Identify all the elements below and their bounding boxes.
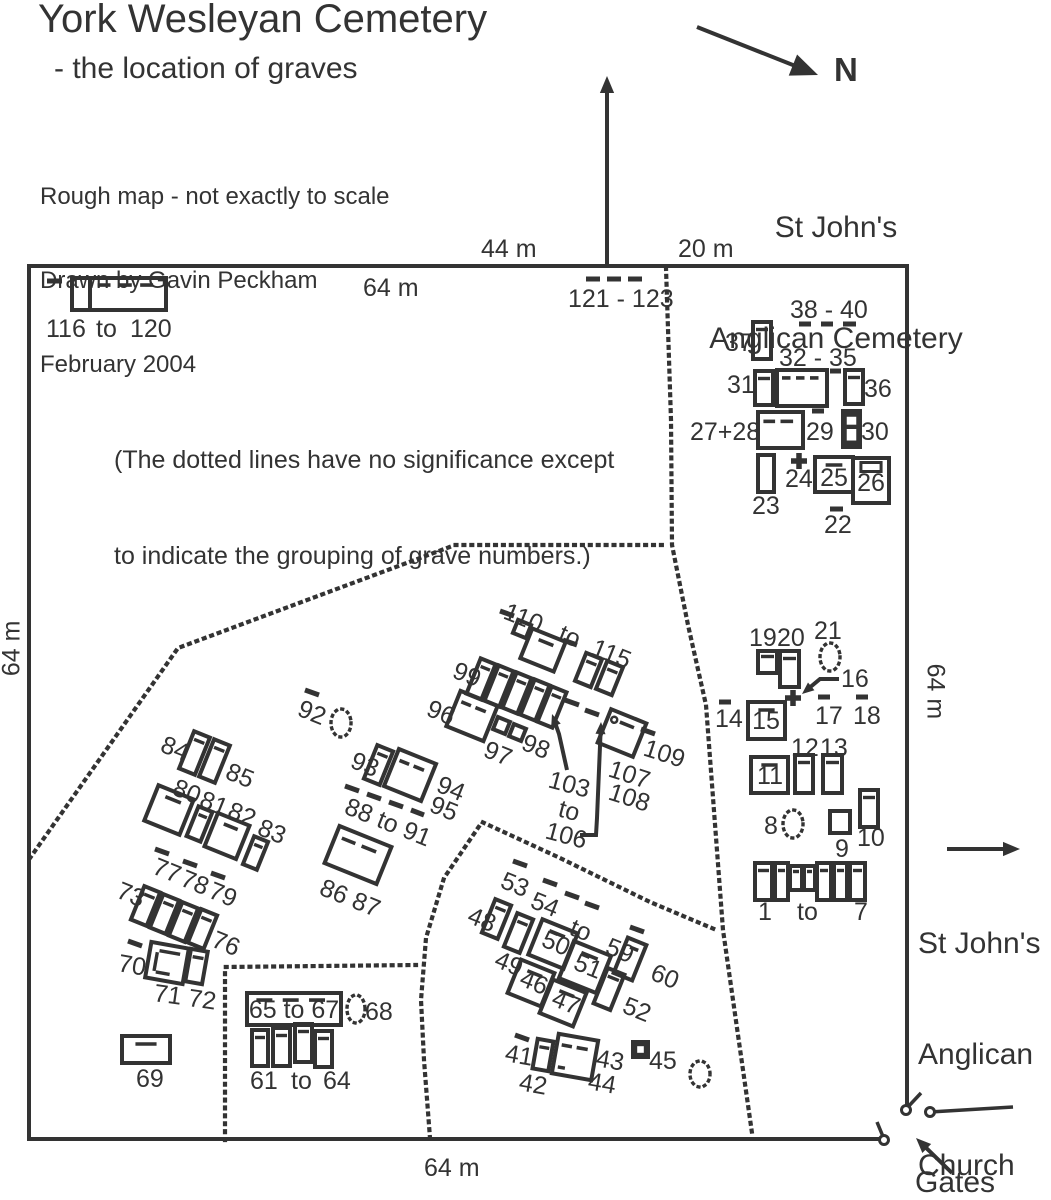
grave-plot-mark <box>342 838 355 843</box>
grave-plot-mark <box>160 951 181 955</box>
grave-plot-mark <box>254 844 262 847</box>
measurement-top-20m: 20 m <box>678 235 734 264</box>
grave-label: 1 <box>758 898 772 926</box>
grave-label: 9 <box>835 835 849 863</box>
grave-plot-outline <box>775 863 788 900</box>
cemetery-map-page: 116to120121 - 1233738 - 403132 - 353627+… <box>0 0 1051 1200</box>
unmarked-grave-dotted-outline <box>331 709 351 737</box>
grave-plot <box>780 651 799 687</box>
credit-line: Drawn by Gavin Peckham <box>40 267 390 295</box>
grave-label: 21 <box>814 617 842 645</box>
grave-plot-mark <box>156 972 170 974</box>
grave-plot <box>273 1028 290 1066</box>
grave-marker-dash <box>630 927 644 932</box>
church-line: Anglican <box>918 1036 1040 1073</box>
grave-label: 121 - 123 <box>568 285 674 313</box>
grave-label: 73 <box>113 877 149 913</box>
grave-plot-outline <box>758 651 777 673</box>
grave-plot-outline <box>504 913 533 953</box>
grave-plot-outline <box>834 863 847 900</box>
note-line: (The dotted lines have no significance e… <box>114 444 614 476</box>
grave-plot-mark <box>475 708 485 712</box>
grave-label: 11 <box>757 762 783 790</box>
grave-plot-mark <box>362 846 377 852</box>
page-title: York Wesleyan Cemetery <box>38 0 487 42</box>
grave-plot-mark <box>154 952 157 971</box>
unmarked-grave-dotted-outline <box>820 643 840 671</box>
grave-marker-dash <box>513 861 527 866</box>
grave-plot-outline <box>850 863 865 900</box>
measurement-top-44m: 44 m <box>481 235 537 264</box>
grave-plot-outline <box>273 1028 290 1066</box>
dotted-lines-note: (The dotted lines have no significance e… <box>114 380 614 636</box>
grave-plot-outline <box>780 651 799 687</box>
grave-marker-dash <box>305 690 319 695</box>
grave-label: 19 <box>749 624 777 652</box>
grave-plot-mark <box>461 702 471 706</box>
grave-plot <box>758 455 774 492</box>
grave-label: 18 <box>853 702 881 730</box>
grave-label: 25 <box>820 464 848 492</box>
grave-plot <box>122 1036 170 1063</box>
church-label: St John's Anglican Church <box>918 851 1040 1200</box>
grave-label: 60 <box>647 959 683 995</box>
note-line: to indicate the grouping of grave number… <box>114 540 614 572</box>
compass-north-label: N <box>834 51 858 89</box>
grave-label: 12 <box>791 734 819 762</box>
gate-hinge <box>902 1106 911 1115</box>
grave-plot-outline <box>790 866 802 890</box>
grave-marker-dash <box>585 710 599 715</box>
grave-plot-outline <box>122 1036 170 1063</box>
grave-label: 8 <box>764 812 778 840</box>
grave-plot-mark <box>201 917 211 921</box>
grave-plot <box>315 1031 332 1067</box>
gates-label: Gates <box>915 1166 995 1200</box>
unmarked-grave-dotted-outline <box>783 810 803 838</box>
grave-plot-mark <box>400 760 410 764</box>
grave-label: 23 <box>752 492 780 520</box>
grave-plot <box>804 866 815 890</box>
grave-label: 7 <box>854 898 868 926</box>
grave-plot-outline <box>185 949 207 984</box>
grave-plot <box>775 863 788 900</box>
grave-marker-dash <box>367 794 381 799</box>
grave-label: 68 <box>365 998 393 1026</box>
grave-plot-outline <box>493 717 510 734</box>
measurement-left-64m: 64 m <box>0 617 26 679</box>
grave-plot-mark <box>539 1047 549 1049</box>
grave-label: 26 <box>857 469 885 497</box>
grave-plot <box>817 863 831 900</box>
grave-plot-outline <box>145 942 189 984</box>
neighbor-line: St John's <box>690 209 982 246</box>
grave-plot <box>860 790 878 827</box>
grave-plot <box>758 651 777 673</box>
grave-marker-dash <box>411 810 424 815</box>
grave-plot-outline <box>533 1039 554 1071</box>
grave-label: 42 <box>517 1068 549 1100</box>
grave-label: 83 <box>254 814 290 850</box>
grave-plot-mark <box>193 957 204 959</box>
grave-plot <box>755 863 772 900</box>
unmarked-grave-dotted-outline <box>347 995 365 1023</box>
grave-plot-mark <box>414 766 424 770</box>
grave-plot-mark <box>163 902 173 906</box>
grave-plot-mark <box>637 1046 644 1053</box>
grave-label: 24 <box>785 465 813 493</box>
grave-plot-mark <box>214 747 224 751</box>
grave-label: 17 <box>815 702 843 730</box>
grave-plot-mark <box>562 1045 572 1047</box>
gate-hinge <box>880 1136 889 1145</box>
grave-plot-outline <box>817 863 831 900</box>
grave-plot-mark <box>552 694 561 698</box>
grave-label: 52 <box>619 992 655 1028</box>
grave-label: 14 <box>715 705 743 733</box>
unmarked-grave-dotted-outline <box>690 1061 710 1087</box>
grave-plot-outline <box>830 811 850 833</box>
grave-marker-dash <box>345 786 359 791</box>
neighbor-cemetery-label: St John's Anglican Cemetery <box>690 135 982 431</box>
grave-plot-outline <box>860 790 878 827</box>
church-line: St John's <box>918 925 1040 962</box>
grave-plot-outline <box>755 863 772 900</box>
grave-marker-dash <box>543 880 557 885</box>
grave-plot <box>493 717 510 734</box>
grave-label: 45 <box>649 1047 677 1075</box>
north-arrow <box>697 27 803 69</box>
grave-plot-mark <box>517 680 526 684</box>
grave-plot <box>252 1030 268 1066</box>
grave-label: 96 <box>423 695 459 731</box>
credit-line: February 2004 <box>40 351 390 379</box>
grave-label: 65 to 67 <box>249 996 339 1024</box>
grave-plot <box>633 1042 648 1057</box>
grave-plot <box>830 811 850 833</box>
grave-marker-dash <box>565 893 579 898</box>
grave-plot-mark <box>182 910 192 914</box>
grave-marker-dash <box>389 802 403 807</box>
grave-label: 106 <box>542 817 590 855</box>
grave-label: 76 <box>208 926 244 962</box>
grave-marker-dash <box>565 700 579 705</box>
grave-plot-mark <box>517 921 527 925</box>
grave-label: 10 <box>857 824 885 852</box>
grave-label: 92 <box>294 695 330 731</box>
grave-plot-outline <box>252 1030 268 1066</box>
grave-plot <box>169 902 198 942</box>
grave-plot-mark <box>194 739 204 743</box>
measurement-right-64m: 64 m <box>921 660 950 722</box>
page-subtitle: - the location of graves <box>54 52 358 87</box>
grave-plot-outline <box>804 866 815 890</box>
grave-label: 44 <box>586 1067 618 1099</box>
grave-plot-outline <box>315 1031 332 1067</box>
grave-plot-mark <box>535 687 544 691</box>
grave-plot-mark <box>539 640 554 646</box>
grave-plot <box>295 1024 312 1062</box>
neighbor-line: Anglican Cemetery <box>690 320 982 357</box>
grave-plot <box>185 949 207 984</box>
grave-plot-mark <box>499 673 508 677</box>
grave-label: 85 <box>222 758 258 794</box>
grave-label: 69 <box>136 1065 164 1093</box>
grave-plot-outline <box>758 455 774 492</box>
grave-label: to <box>797 898 818 926</box>
grave-label: 70 <box>116 949 148 981</box>
measurement-bottom-64m: 64 m <box>424 1154 480 1183</box>
grave-plot <box>504 913 533 953</box>
grave-plot-outline <box>295 1024 312 1062</box>
grave-plot <box>850 863 865 900</box>
grave-label: 71 72 <box>152 979 218 1015</box>
grave-label: 20 <box>777 624 805 652</box>
grave-label: 53 <box>497 867 533 903</box>
grave-plot <box>150 894 179 934</box>
grave-label: 16 <box>841 665 869 693</box>
grave-plot-mark <box>620 722 634 728</box>
grave-label: 93 <box>347 747 383 783</box>
label-103-arrow <box>554 721 567 770</box>
grave-label: 64 <box>323 1067 351 1095</box>
grave-plot <box>145 942 189 984</box>
grave-label: to <box>291 1067 312 1095</box>
grave-plot-mark <box>608 976 619 980</box>
grave-label: 84 <box>157 731 193 767</box>
grave-plot-outline <box>169 902 198 942</box>
grave-label: 79 <box>205 877 241 913</box>
grave-label: 48 <box>464 902 500 938</box>
grave-label: 13 <box>820 734 848 762</box>
grave-plot <box>790 866 802 890</box>
grave-label: 115 <box>588 634 635 675</box>
credit-line: Rough map - not exactly to scale <box>40 183 390 211</box>
grave-plot-mark <box>610 716 618 724</box>
grave-plot-mark <box>558 1067 565 1068</box>
measurement-top-inner-64m: 64 m <box>363 274 419 303</box>
north-arrow-head <box>789 55 818 76</box>
grave-plot-outline <box>150 894 179 934</box>
grave-label: 22 <box>824 511 852 539</box>
grave-marker-dash <box>128 941 142 946</box>
grave-marker-dash <box>585 903 599 908</box>
grave-label: 41 <box>503 1039 535 1071</box>
grave-plot-mark <box>577 1048 588 1050</box>
grave-plot <box>834 863 847 900</box>
grave-plot <box>533 1039 554 1071</box>
grave-label: 15 <box>752 707 780 735</box>
grave-label: 61 <box>250 1067 278 1095</box>
up-arrow-head <box>600 76 614 93</box>
grave-marker-dash <box>515 1035 529 1040</box>
